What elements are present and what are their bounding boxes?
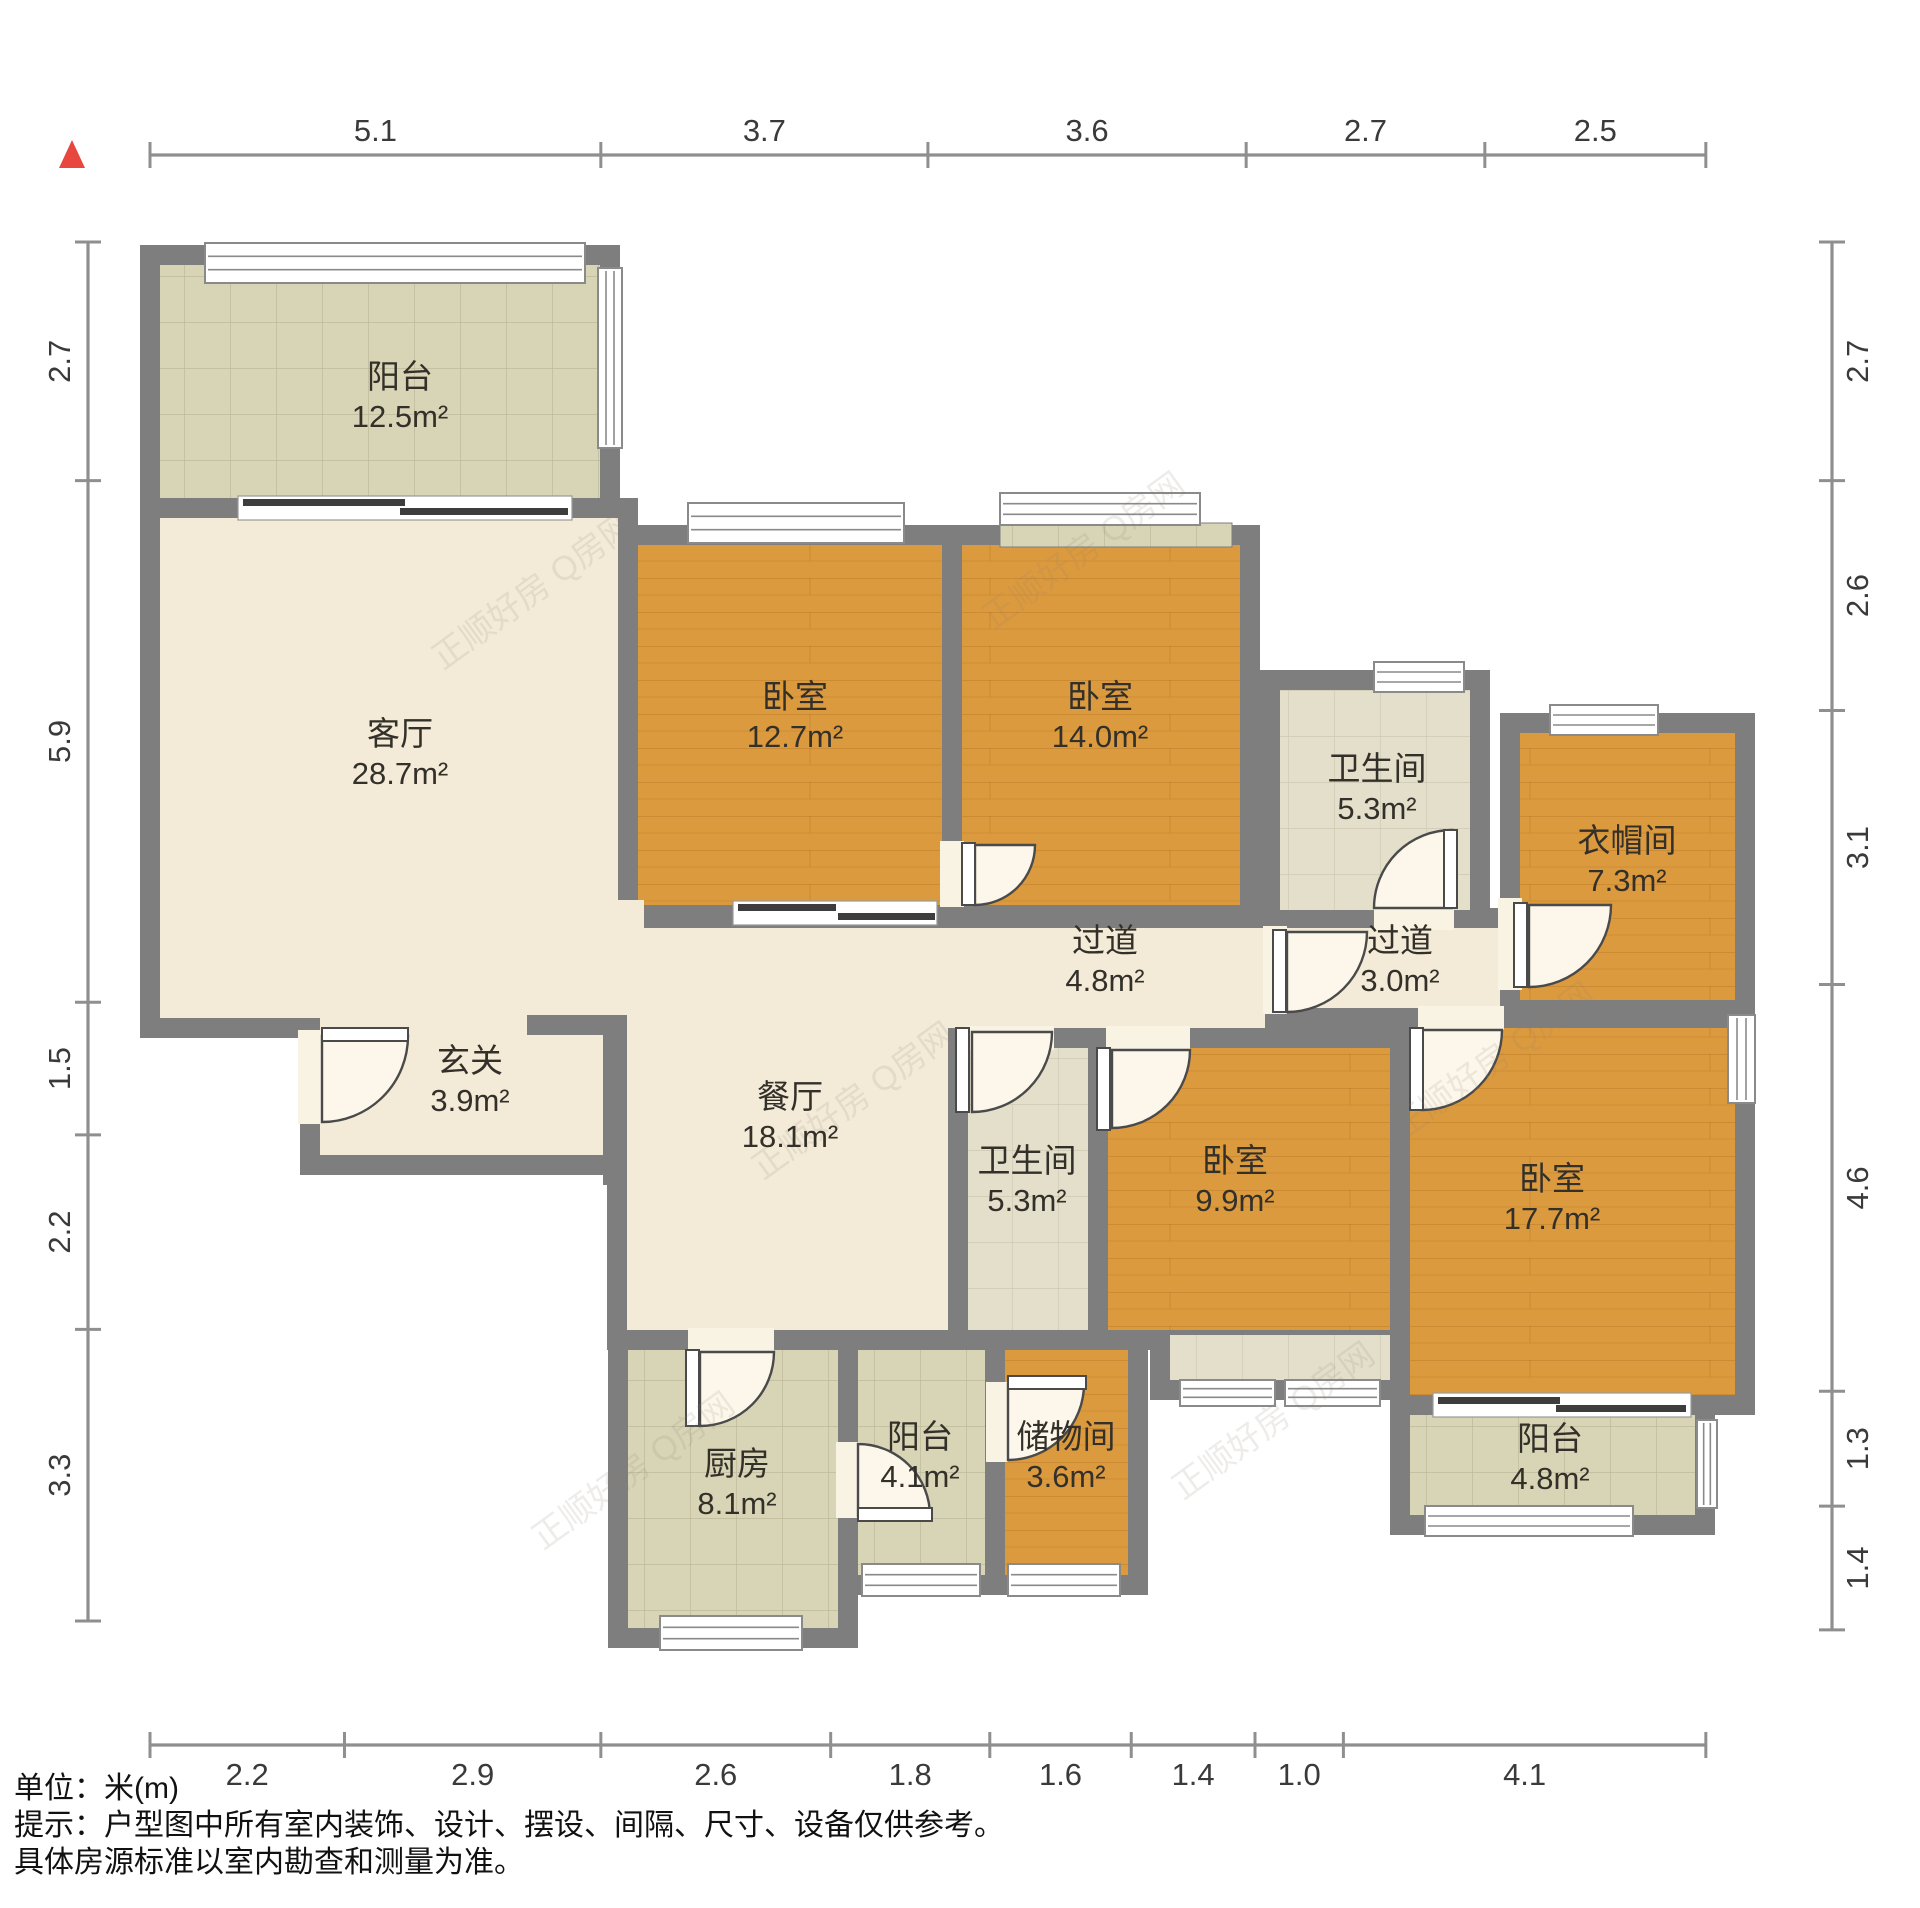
svg-text:1.4: 1.4 [1840, 1546, 1875, 1589]
sliding-door-panel [400, 508, 568, 515]
svg-text:3.1: 3.1 [1840, 826, 1875, 869]
svg-text:5.9: 5.9 [42, 720, 77, 763]
door-opening [298, 1030, 322, 1124]
svg-text:2.6: 2.6 [694, 1757, 737, 1792]
window [688, 503, 904, 543]
door-leaf [1097, 1048, 1110, 1130]
door-opening [836, 1442, 860, 1518]
sliding-door-panel [838, 913, 935, 920]
room-label-entry-hall: 玄关 [437, 1042, 503, 1079]
room-label-bedroom-d: 卧室 [1519, 1160, 1585, 1197]
room-area-cloakroom: 7.3m² [1587, 863, 1666, 898]
door-opening [940, 841, 964, 907]
floorplan-svg: 正顺好房 Q房网正顺好房 Q房网正顺好房 Q房网正顺好房 Q房网正顺好房 Q房网… [0, 0, 1920, 1908]
wall-segment [603, 1015, 627, 1185]
svg-text:1.8: 1.8 [889, 1757, 932, 1792]
room-area-hallway-a: 4.8m² [1065, 963, 1144, 998]
window [1180, 1380, 1275, 1406]
svg-text:4.6: 4.6 [1840, 1166, 1875, 1209]
svg-text:1.6: 1.6 [1039, 1757, 1082, 1792]
room-area-dining-room: 18.1m² [742, 1119, 838, 1154]
room-label-bedroom-a: 卧室 [762, 678, 828, 715]
room-label-bedroom-c: 卧室 [1202, 1142, 1268, 1179]
floor-patch [330, 1002, 510, 1028]
sliding-door-panel [1556, 1405, 1686, 1412]
room-label-bathroom-a: 卫生间 [1328, 750, 1427, 787]
dimension-top: 5.13.73.62.72.5 [150, 113, 1706, 168]
svg-text:5.1: 5.1 [354, 113, 397, 148]
dimension-left: 2.75.91.52.23.3 [42, 242, 101, 1621]
svg-text:2.2: 2.2 [226, 1757, 269, 1792]
door-leaf [956, 1028, 969, 1112]
door-leaf [1273, 930, 1286, 1012]
room-area-bedroom-b: 14.0m² [1052, 719, 1148, 754]
svg-text:1.5: 1.5 [42, 1047, 77, 1090]
window [1425, 1506, 1633, 1536]
room-area-entry-hall: 3.9m² [430, 1083, 509, 1118]
svg-text:2.7: 2.7 [42, 340, 77, 383]
window [1697, 1420, 1717, 1508]
sliding-door-panel [738, 904, 836, 911]
room-area-balcony-south-2: 4.8m² [1510, 1461, 1589, 1496]
floor-patch [612, 900, 644, 1032]
door-opening [986, 1382, 1008, 1462]
room-label-hallway-b: 过道 [1367, 922, 1433, 959]
door-leaf [858, 1508, 932, 1521]
compass-north-icon [59, 140, 85, 168]
room-area-living-room: 28.7m² [352, 756, 448, 791]
room-area-hallway-b: 3.0m² [1360, 963, 1439, 998]
dimension-right: 2.72.63.14.61.31.4 [1819, 242, 1875, 1630]
sliding-door-panel [1438, 1397, 1560, 1404]
door-leaf [962, 843, 975, 905]
svg-text:1.4: 1.4 [1172, 1757, 1215, 1792]
window [1728, 1015, 1755, 1103]
door-leaf [1514, 903, 1527, 987]
room-label-storage-room: 储物间 [1017, 1418, 1116, 1455]
svg-text:3.3: 3.3 [42, 1454, 77, 1497]
sliding-door-panel [243, 499, 405, 506]
room-area-balcony-south-1: 4.1m² [880, 1459, 959, 1494]
room-area-bedroom-c: 9.9m² [1195, 1183, 1274, 1218]
svg-text:2.9: 2.9 [451, 1757, 494, 1792]
svg-text:3.6: 3.6 [1065, 113, 1108, 148]
room-label-living-room: 客厅 [367, 715, 433, 752]
door-opening [1418, 1006, 1504, 1030]
room-area-bathroom-b: 5.3m² [987, 1183, 1066, 1218]
room-label-kitchen: 厨房 [704, 1445, 770, 1482]
floorplan-stage: 单位：米(m) 提示：户型图中所有室内装饰、设计、摆设、间隔、尺寸、设备仅供参考… [0, 0, 1920, 1908]
room-label-cloakroom: 衣帽间 [1578, 822, 1677, 859]
door-opening [1106, 1026, 1190, 1050]
room-area-storage-room: 3.6m² [1026, 1459, 1105, 1494]
door-opening [688, 1328, 774, 1352]
room-label-balcony-north: 阳台 [367, 358, 433, 395]
svg-text:4.1: 4.1 [1503, 1757, 1546, 1792]
svg-text:2.6: 2.6 [1840, 574, 1875, 617]
room-label-hallway-a: 过道 [1072, 922, 1138, 959]
svg-text:1.0: 1.0 [1278, 1757, 1321, 1792]
room-label-bathroom-b: 卫生间 [978, 1142, 1077, 1179]
window [862, 1564, 980, 1596]
svg-text:2.2: 2.2 [42, 1211, 77, 1254]
room-area-bathroom-a: 5.3m² [1337, 791, 1416, 826]
window [660, 1616, 802, 1650]
room-label-balcony-south-2: 阳台 [1517, 1420, 1583, 1457]
room-label-dining-room: 餐厅 [757, 1078, 823, 1115]
window [1374, 662, 1464, 692]
room-area-kitchen: 8.1m² [697, 1486, 776, 1521]
dimension-bottom: 2.22.92.61.81.61.41.04.1 [150, 1732, 1706, 1792]
room-label-balcony-south-1: 阳台 [887, 1418, 953, 1455]
window [1550, 705, 1658, 735]
svg-text:2.7: 2.7 [1344, 113, 1387, 148]
svg-text:2.7: 2.7 [1840, 340, 1875, 383]
svg-text:2.5: 2.5 [1574, 113, 1617, 148]
room-area-balcony-north: 12.5m² [352, 399, 448, 434]
door-leaf [1008, 1376, 1086, 1389]
door-leaf [1444, 830, 1457, 908]
svg-text:3.7: 3.7 [743, 113, 786, 148]
window [1008, 1564, 1120, 1596]
window [598, 268, 622, 448]
room-area-bedroom-a: 12.7m² [747, 719, 843, 754]
room-label-bedroom-b: 卧室 [1067, 678, 1133, 715]
svg-text:1.3: 1.3 [1840, 1427, 1875, 1470]
room-area-bedroom-d: 17.7m² [1504, 1201, 1600, 1236]
door-leaf [322, 1028, 408, 1041]
window [205, 243, 585, 283]
